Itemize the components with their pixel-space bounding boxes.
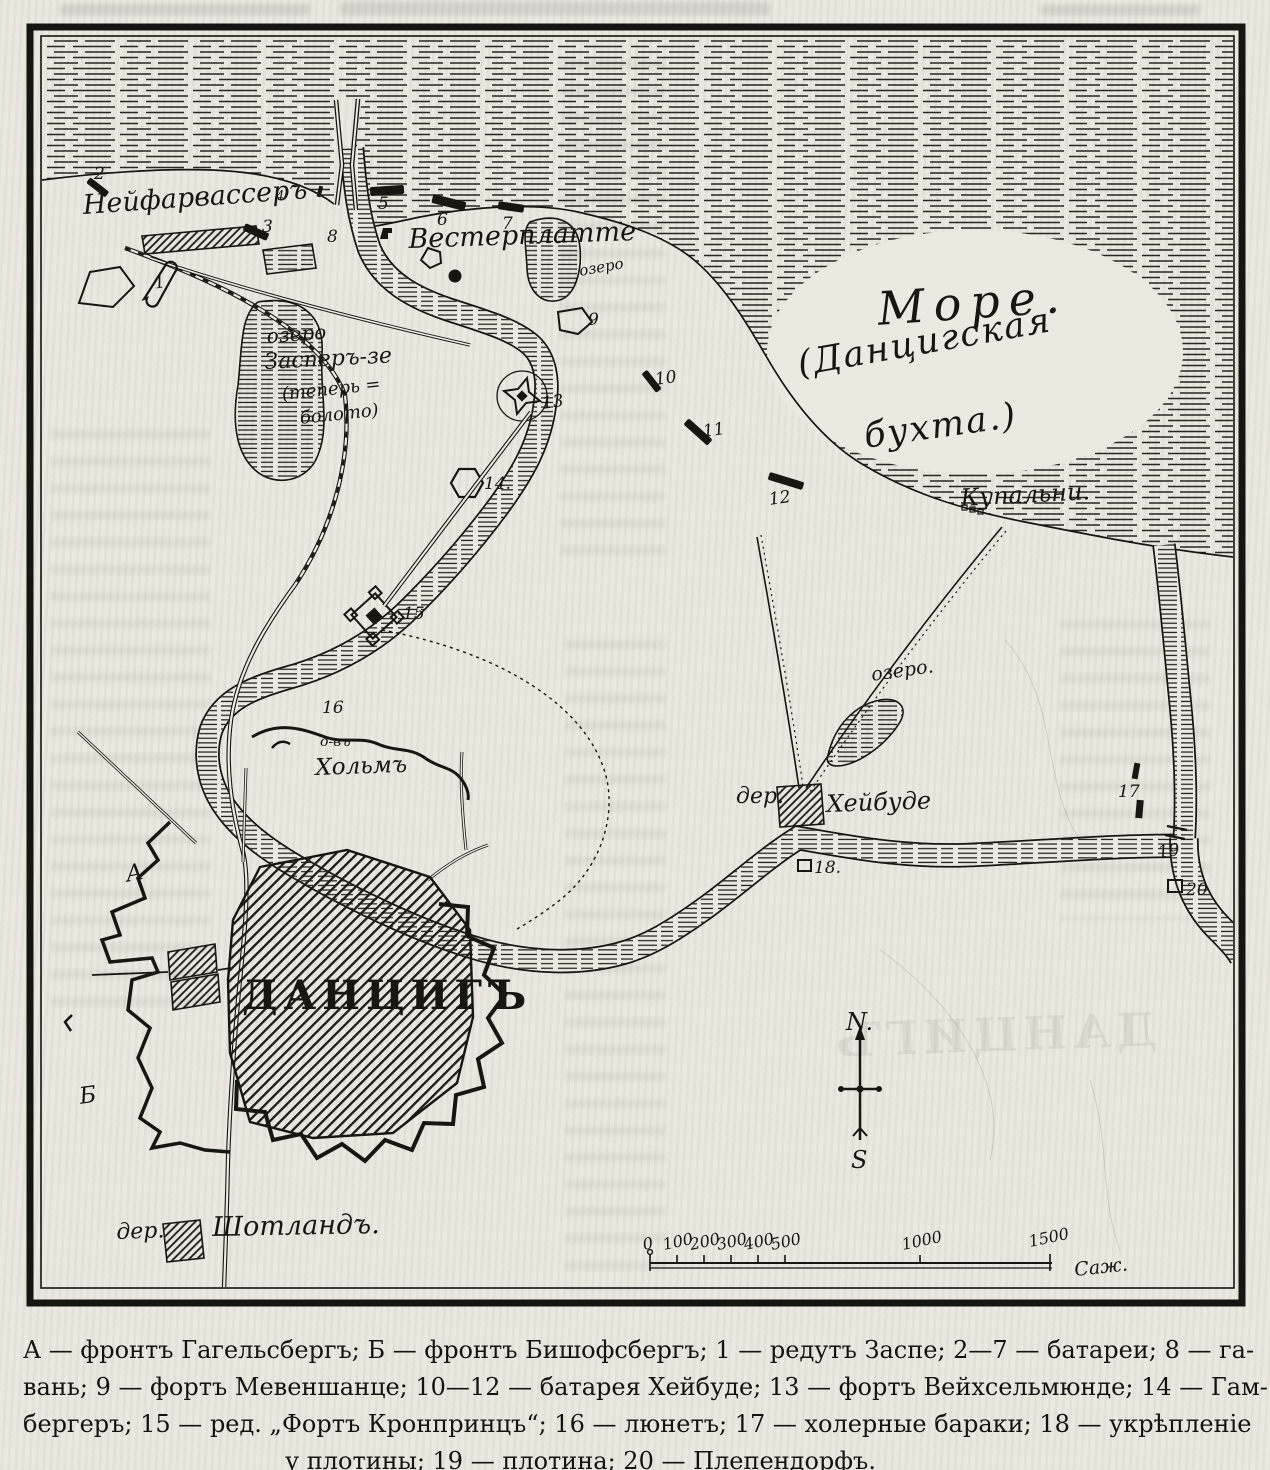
marker-10: 10 [654,369,678,389]
ghost-mirrored-danzig: ДАНЦИГЪ [829,1002,1158,1067]
scale-tick-1000: 1000 [900,1227,944,1254]
scale-tick-1500: 1500 [1027,1224,1071,1251]
fort-moevenschanze [558,308,592,334]
marker-15: 15 [403,606,425,623]
label-schottland-prefix: дер. [116,1220,165,1244]
suburb-block [171,974,220,1010]
compass-south-label: S [851,1146,867,1174]
marker-20: 20 [1186,882,1208,899]
heubude-village-block [777,784,824,827]
label-danzig: ДАНЦИГЪ [242,976,532,1016]
marker-9: 9 [588,312,599,329]
legend-line-4: у плотины; 19 — плотина; 20 — Плепендорф… [23,1443,1247,1470]
scale-tick-500: 500 [769,1229,803,1254]
legend-line-3: бергеръ; 15 — ред. „Фортъ Кронпринцъ“; 1… [23,1406,1247,1443]
scale-tick-0: 0 [641,1233,655,1254]
marker-6: 6 [437,212,448,229]
heubude-roads [757,527,1002,788]
marker-13: 13 [541,393,565,413]
scale-unit-label: Саж. [1073,1253,1129,1280]
marker-17: 17 [1118,784,1140,801]
scale-bar: 0 100 200 300 400 500 1000 1500 Саж. [641,1224,1129,1281]
marker-18: 18. [814,860,841,877]
harbor-basin [263,244,316,274]
suburb-block [168,944,217,980]
schottland-village-block [163,1220,204,1262]
label-holm: Хольмъ [315,754,408,780]
lunette-symbol [272,742,290,748]
label-schottland: Шотландъ. [212,1211,380,1241]
marker-14: 14. [484,476,511,493]
marker-11: 11 [702,421,726,441]
map-legend: А — фронтъ Гагельсбергъ; Б — фронтъ Бишо… [23,1332,1247,1470]
marker-5: 5 [378,196,389,213]
label-holm-prefix: о-въ [320,735,351,749]
marker-4: 4 [276,190,284,203]
label-heubude-prefix: дер. [736,786,784,808]
marker-12: 12 [768,489,792,509]
marker-19: 19 [1157,842,1181,862]
label-kupalni: Купальни. [960,479,1091,510]
map-page: N. S 0 100 200 300 400 500 1000 1500 [0,0,1270,1470]
blockhouse [380,228,392,239]
lake-heubude [827,700,903,766]
front-mark [65,1015,72,1031]
marker-8: 8 [327,229,338,246]
marker-2: 2 [94,166,105,183]
legend-line-1: А — фронтъ Гагельсбергъ; Б — фронтъ Бишо… [23,1332,1247,1369]
label-heubude: Хейбуде [826,788,932,816]
channel-fort-blob [449,270,462,283]
works-outline [79,267,134,307]
marker-7: 7 [502,216,513,233]
marker-3: 3 [262,219,273,236]
label-zasper-line1: озеро [266,322,327,346]
marker-16: 16 [322,700,344,717]
dam-fortification [798,860,811,871]
legend-line-2: вань; 9 — фортъ Мевеншанце; 10—12 — бата… [23,1369,1247,1406]
label-front-b: Б [78,1084,98,1109]
quay [142,226,259,254]
label-front-a: А [124,861,145,887]
terrain-ghost [880,640,1120,1250]
